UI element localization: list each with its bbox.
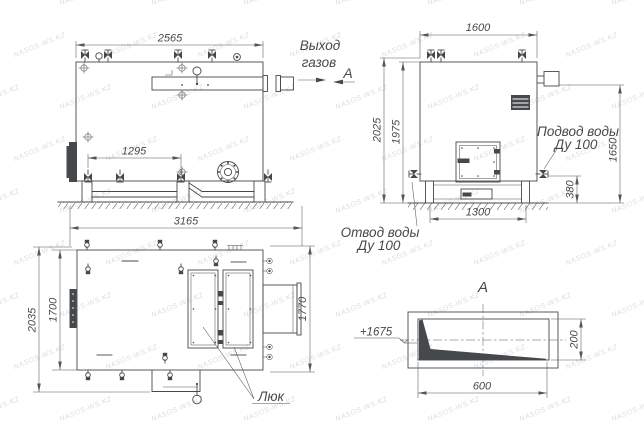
drawing-sheet: NASOS-WS.KZNASOS-WS.KZNASOS-WS.KZNASOS-W… bbox=[0, 0, 644, 430]
hatch-hinge bbox=[218, 340, 224, 344]
valve-icon bbox=[168, 370, 173, 380]
hatch-label: Люк bbox=[257, 389, 284, 404]
dim-section-height: 200 bbox=[551, 319, 586, 360]
elevation-label: +1675 bbox=[360, 327, 393, 339]
valve-icon bbox=[163, 353, 168, 363]
drain-valve-icon bbox=[264, 170, 272, 182]
gas-outlet-duct bbox=[152, 76, 294, 92]
bolt-fitting-icon bbox=[267, 354, 273, 360]
dim-text: 1600 bbox=[466, 22, 491, 34]
valve-icon bbox=[518, 50, 526, 62]
flow-arrow-icon bbox=[298, 78, 326, 83]
dim-text: 1300 bbox=[466, 207, 491, 219]
flange-strip-icon bbox=[227, 246, 243, 251]
valve-icon bbox=[158, 240, 163, 250]
section-arrow-label: А bbox=[342, 65, 352, 81]
dim-text: 380 bbox=[565, 179, 577, 198]
dim-top-right-width: 1770 bbox=[270, 246, 315, 372]
hatch-hinge bbox=[218, 330, 224, 336]
rear-flange-icon bbox=[70, 289, 77, 328]
leader-line bbox=[544, 149, 557, 169]
gas-outlet-duct-top bbox=[263, 283, 301, 335]
handwheel-icon bbox=[193, 395, 202, 404]
handwheel-icon bbox=[234, 54, 241, 61]
water-outlet-valve-icon bbox=[409, 170, 421, 178]
valve-icon bbox=[213, 240, 218, 250]
hatch-right bbox=[223, 270, 253, 348]
drain-valve-icon bbox=[116, 170, 124, 182]
valve-icon bbox=[81, 50, 89, 62]
elevation-annotation: +1675 bbox=[354, 327, 417, 344]
handwheel-icon bbox=[96, 53, 102, 62]
valve-icon bbox=[437, 50, 445, 62]
boiler-body-top bbox=[77, 250, 263, 370]
section-a-view: А +1675 200 600 bbox=[354, 279, 586, 398]
hatch-hinge bbox=[218, 301, 224, 305]
boiler-body-front bbox=[420, 62, 537, 181]
valve-icon bbox=[104, 50, 112, 62]
top-view: Люк bbox=[70, 240, 302, 404]
alignment-mark-icon bbox=[83, 132, 94, 143]
rear-flange-icon bbox=[67, 142, 78, 182]
bolt-fitting-icon bbox=[267, 268, 273, 274]
valve-icon bbox=[179, 264, 184, 274]
chimney-stub bbox=[537, 72, 559, 87]
water-outlet-label-2: Ду 100 bbox=[356, 238, 401, 253]
valve-icon bbox=[85, 240, 90, 250]
alignment-mark-icon bbox=[177, 63, 188, 74]
valve-icon bbox=[174, 50, 182, 62]
dim-text: 1650 bbox=[608, 137, 620, 162]
dim-side-valve-spacing: 1295 bbox=[88, 146, 181, 169]
dim-text: 600 bbox=[473, 381, 492, 393]
valve-icon bbox=[214, 256, 219, 266]
side-view bbox=[58, 50, 294, 209]
door-hinge bbox=[494, 149, 500, 154]
boiler-body-side bbox=[76, 62, 263, 181]
base-frame bbox=[426, 181, 530, 203]
gas-outlet-label-1: Выход bbox=[300, 38, 341, 53]
gas-outlet-label-2: газов bbox=[302, 55, 336, 70]
front-extension bbox=[152, 370, 201, 404]
dim-front-drain-height: 380 bbox=[548, 176, 581, 203]
section-title: А bbox=[477, 279, 488, 296]
dim-text: 200 bbox=[569, 329, 581, 349]
sensor-icon bbox=[193, 67, 201, 85]
dim-text: 2025 bbox=[372, 117, 384, 143]
hatch-hinge bbox=[218, 291, 224, 297]
valve-icon bbox=[86, 264, 91, 274]
valve-icon bbox=[208, 50, 216, 62]
dim-text: 1975 bbox=[391, 119, 403, 144]
dim-text: 1295 bbox=[122, 146, 147, 158]
nameplate bbox=[511, 95, 530, 110]
alignment-mark-icon bbox=[79, 63, 90, 74]
ground-line bbox=[58, 202, 293, 209]
bolt-fitting-icon bbox=[267, 258, 273, 264]
drain-valve-icon bbox=[84, 170, 92, 182]
inspection-door bbox=[456, 142, 500, 182]
boiler-drawing: Выход газов А 2565 1295 3165 bbox=[0, 0, 644, 430]
dim-text: 2035 bbox=[27, 307, 39, 333]
dim-text: 1770 bbox=[297, 296, 309, 321]
bolt-fitting-icon bbox=[267, 344, 273, 350]
hatch-callout: Люк bbox=[203, 327, 290, 404]
valve-icon bbox=[86, 370, 91, 380]
dim-side-overall-length: 3165 bbox=[70, 206, 302, 246]
hatch-left bbox=[188, 270, 218, 348]
burner-flange-icon bbox=[218, 162, 239, 183]
fitting-icon bbox=[165, 70, 172, 75]
valve-icon bbox=[120, 370, 125, 380]
dim-front-body-height: 1975 bbox=[380, 62, 420, 203]
dim-text: 1700 bbox=[48, 297, 60, 322]
dim-section-width: 600 bbox=[418, 362, 547, 398]
door-handle bbox=[458, 159, 470, 164]
water-inlet-label-2: Ду 100 bbox=[553, 137, 598, 152]
dim-text: 3165 bbox=[174, 216, 199, 228]
water-inlet-valve-icon bbox=[536, 170, 548, 178]
alignment-mark-icon bbox=[177, 90, 188, 101]
gas-flow-annotation: Выход газов А bbox=[298, 38, 355, 84]
door-hinge bbox=[494, 170, 500, 175]
valve-icon bbox=[427, 50, 435, 62]
dim-text: 2565 bbox=[157, 33, 183, 45]
support-legs bbox=[82, 181, 265, 202]
